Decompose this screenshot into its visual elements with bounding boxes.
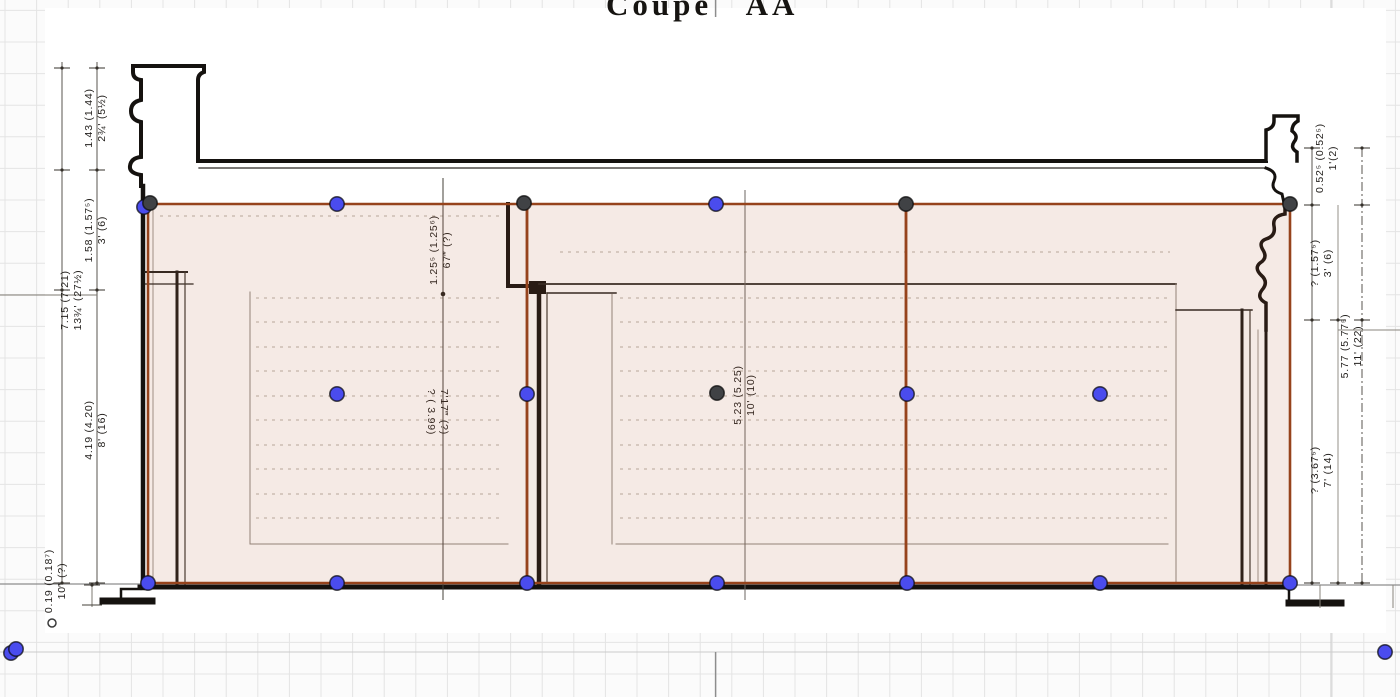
vertex-handle-dark[interactable] <box>710 386 724 400</box>
vertex-handle-blue[interactable] <box>520 576 534 590</box>
annotation-overlay[interactable] <box>0 0 1400 697</box>
vertex-handle-blue[interactable] <box>330 576 344 590</box>
vertex-handle-blue[interactable] <box>1378 645 1392 659</box>
vertex-handle-blue[interactable] <box>900 387 914 401</box>
vertex-handle-dark[interactable] <box>1283 197 1297 211</box>
vertex-handle-blue[interactable] <box>1093 576 1107 590</box>
vertex-handle-blue[interactable] <box>1283 576 1297 590</box>
vertex-handle-blue[interactable] <box>520 387 534 401</box>
vertex-handle-blue[interactable] <box>9 642 23 656</box>
vertex-handle-dark[interactable] <box>517 196 531 210</box>
vertex-handle-blue[interactable] <box>141 576 155 590</box>
vertex-handle-dark[interactable] <box>899 197 913 211</box>
vertex-handle-blue[interactable] <box>330 387 344 401</box>
vertex-handle-blue[interactable] <box>900 576 914 590</box>
vertex-handle-blue[interactable] <box>709 197 723 211</box>
vertex-handle-blue[interactable] <box>710 576 724 590</box>
annotation-canvas[interactable]: 1.43 (1.44)2¾' (5½)1.58 (1.57⁵)3' (6)7.1… <box>0 0 1400 697</box>
small-marker[interactable] <box>48 619 56 627</box>
vertex-handle-blue[interactable] <box>330 197 344 211</box>
vertex-handle-blue[interactable] <box>1093 387 1107 401</box>
vertex-handle-dark[interactable] <box>143 196 157 210</box>
